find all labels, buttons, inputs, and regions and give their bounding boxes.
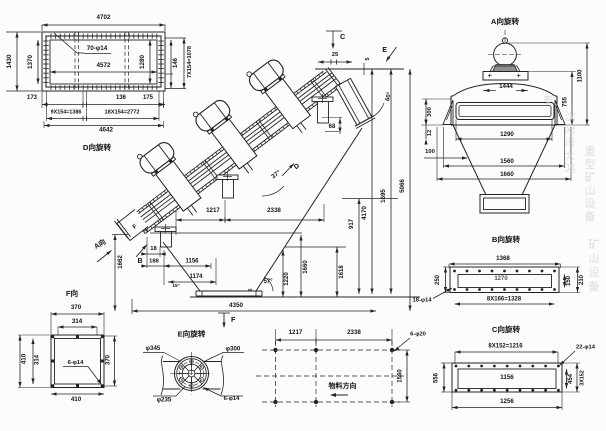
- svg-text:4572: 4572: [96, 62, 111, 69]
- svg-text:1256: 1256: [500, 398, 514, 405]
- svg-text:型: 型: [585, 157, 596, 171]
- svg-text:C: C: [340, 32, 345, 41]
- svg-text:1220: 1220: [284, 272, 290, 286]
- svg-text:100: 100: [425, 149, 435, 155]
- svg-text:6-φ14: 6-φ14: [68, 360, 85, 366]
- svg-text:150: 150: [566, 275, 572, 286]
- svg-text:1174: 1174: [189, 274, 203, 280]
- svg-text:1660: 1660: [303, 260, 309, 274]
- svg-text:E向旋转: E向旋转: [178, 329, 206, 339]
- svg-text:5: 5: [248, 288, 254, 291]
- svg-text:6-φ20: 6-φ20: [410, 332, 426, 338]
- svg-text:210: 210: [579, 274, 585, 285]
- svg-text:1280: 1280: [139, 55, 146, 70]
- svg-text:300: 300: [427, 107, 433, 117]
- svg-text:173: 173: [27, 95, 38, 101]
- svg-text:1695: 1695: [380, 189, 387, 203]
- svg-text:鸿: 鸿: [565, 161, 576, 175]
- svg-text:D: D: [293, 162, 301, 171]
- svg-text:1270: 1270: [494, 276, 508, 282]
- svg-text:C向旋转: C向旋转: [492, 324, 521, 334]
- svg-text:1662: 1662: [117, 255, 124, 269]
- svg-text:12: 12: [427, 130, 433, 136]
- svg-text:37°: 37°: [270, 169, 282, 181]
- svg-text:4170: 4170: [361, 206, 368, 220]
- svg-text:1430: 1430: [6, 54, 13, 69]
- svg-text:4642: 4642: [99, 127, 114, 134]
- svg-text:φ235: φ235: [157, 397, 172, 404]
- svg-text:8X166=1328: 8X166=1328: [487, 297, 522, 303]
- svg-text:7X154=1078: 7X154=1078: [187, 46, 193, 78]
- svg-text:15°: 15°: [172, 283, 179, 289]
- svg-text:136: 136: [116, 95, 127, 101]
- svg-text:175: 175: [143, 95, 154, 101]
- svg-text:F向: F向: [66, 288, 79, 298]
- svg-text:755: 755: [563, 96, 569, 107]
- svg-text:410: 410: [21, 353, 28, 364]
- svg-text:矿: 矿: [585, 171, 596, 184]
- svg-text:1156: 1156: [185, 259, 199, 265]
- svg-text:917: 917: [349, 218, 355, 229]
- svg-text:314: 314: [35, 354, 41, 365]
- svg-text:4350: 4350: [229, 302, 244, 309]
- svg-text:物料方向: 物料方向: [329, 381, 357, 390]
- svg-text:1156: 1156: [500, 374, 514, 381]
- svg-text:2338: 2338: [347, 329, 361, 336]
- svg-text:E: E: [382, 45, 387, 54]
- svg-text:57°: 57°: [263, 279, 273, 285]
- svg-text:1368: 1368: [496, 255, 510, 262]
- svg-text:φ300: φ300: [226, 346, 241, 353]
- svg-text:60°: 60°: [385, 91, 393, 102]
- svg-text:山: 山: [585, 184, 596, 197]
- svg-text:A向旋转: A向旋转: [491, 16, 520, 26]
- svg-text:370: 370: [106, 354, 112, 365]
- svg-text:2338: 2338: [267, 207, 281, 214]
- svg-text:68: 68: [329, 124, 336, 130]
- svg-text:8X152=1216: 8X152=1216: [488, 344, 523, 350]
- svg-text:314: 314: [72, 318, 83, 325]
- svg-text:1217: 1217: [206, 207, 220, 214]
- svg-text:556: 556: [434, 372, 440, 383]
- svg-text:370: 370: [71, 304, 82, 311]
- svg-text:1660: 1660: [500, 171, 514, 178]
- svg-text:阳: 阳: [565, 123, 576, 136]
- svg-text:矿: 矿: [589, 238, 600, 251]
- svg-text:188: 188: [149, 259, 159, 265]
- svg-text:A向: A向: [92, 237, 107, 251]
- svg-text:22-φ14: 22-φ14: [576, 345, 596, 351]
- svg-text:φ345: φ345: [146, 345, 161, 352]
- svg-text:D向旋转: D向旋转: [83, 142, 112, 152]
- svg-text:重: 重: [585, 144, 596, 158]
- svg-text:1100: 1100: [578, 69, 584, 83]
- svg-text:1560: 1560: [398, 369, 404, 383]
- svg-text:18: 18: [150, 246, 157, 252]
- svg-text:沈: 沈: [565, 109, 576, 123]
- svg-text:146: 146: [173, 57, 179, 68]
- svg-text:F: F: [231, 315, 236, 324]
- svg-text:18X154=2772: 18X154=2772: [105, 110, 140, 116]
- svg-text:备: 备: [589, 279, 600, 293]
- svg-text:B: B: [137, 258, 142, 265]
- svg-text:5: 5: [365, 58, 371, 61]
- svg-text:1618: 1618: [339, 265, 345, 279]
- svg-text:1370: 1370: [27, 55, 34, 70]
- svg-text:大: 大: [565, 148, 576, 162]
- svg-text:3X152: 3X152: [580, 370, 586, 386]
- svg-text:18-φ14: 18-φ14: [413, 298, 433, 304]
- svg-text:设: 设: [589, 266, 600, 279]
- svg-text:4702: 4702: [96, 14, 111, 21]
- svg-text:25: 25: [332, 52, 339, 58]
- svg-text:泰: 泰: [543, 94, 553, 107]
- svg-text:市: 市: [565, 135, 576, 149]
- svg-text:410: 410: [71, 396, 82, 403]
- svg-text:250: 250: [435, 274, 441, 285]
- svg-text:B向旋转: B向旋转: [492, 234, 521, 244]
- svg-text:70-φ14: 70-φ14: [87, 45, 108, 52]
- svg-text:备: 备: [585, 209, 596, 223]
- svg-text:1290: 1290: [500, 131, 514, 138]
- svg-text:1560: 1560: [500, 158, 514, 165]
- svg-text:6-φ14: 6-φ14: [224, 396, 241, 402]
- svg-text:454: 454: [568, 373, 574, 384]
- svg-text:9X154=1386: 9X154=1386: [51, 110, 82, 116]
- svg-text:山: 山: [589, 252, 600, 265]
- svg-text:5066: 5066: [399, 179, 406, 193]
- svg-text:设: 设: [585, 197, 596, 210]
- svg-text:1217: 1217: [289, 329, 303, 336]
